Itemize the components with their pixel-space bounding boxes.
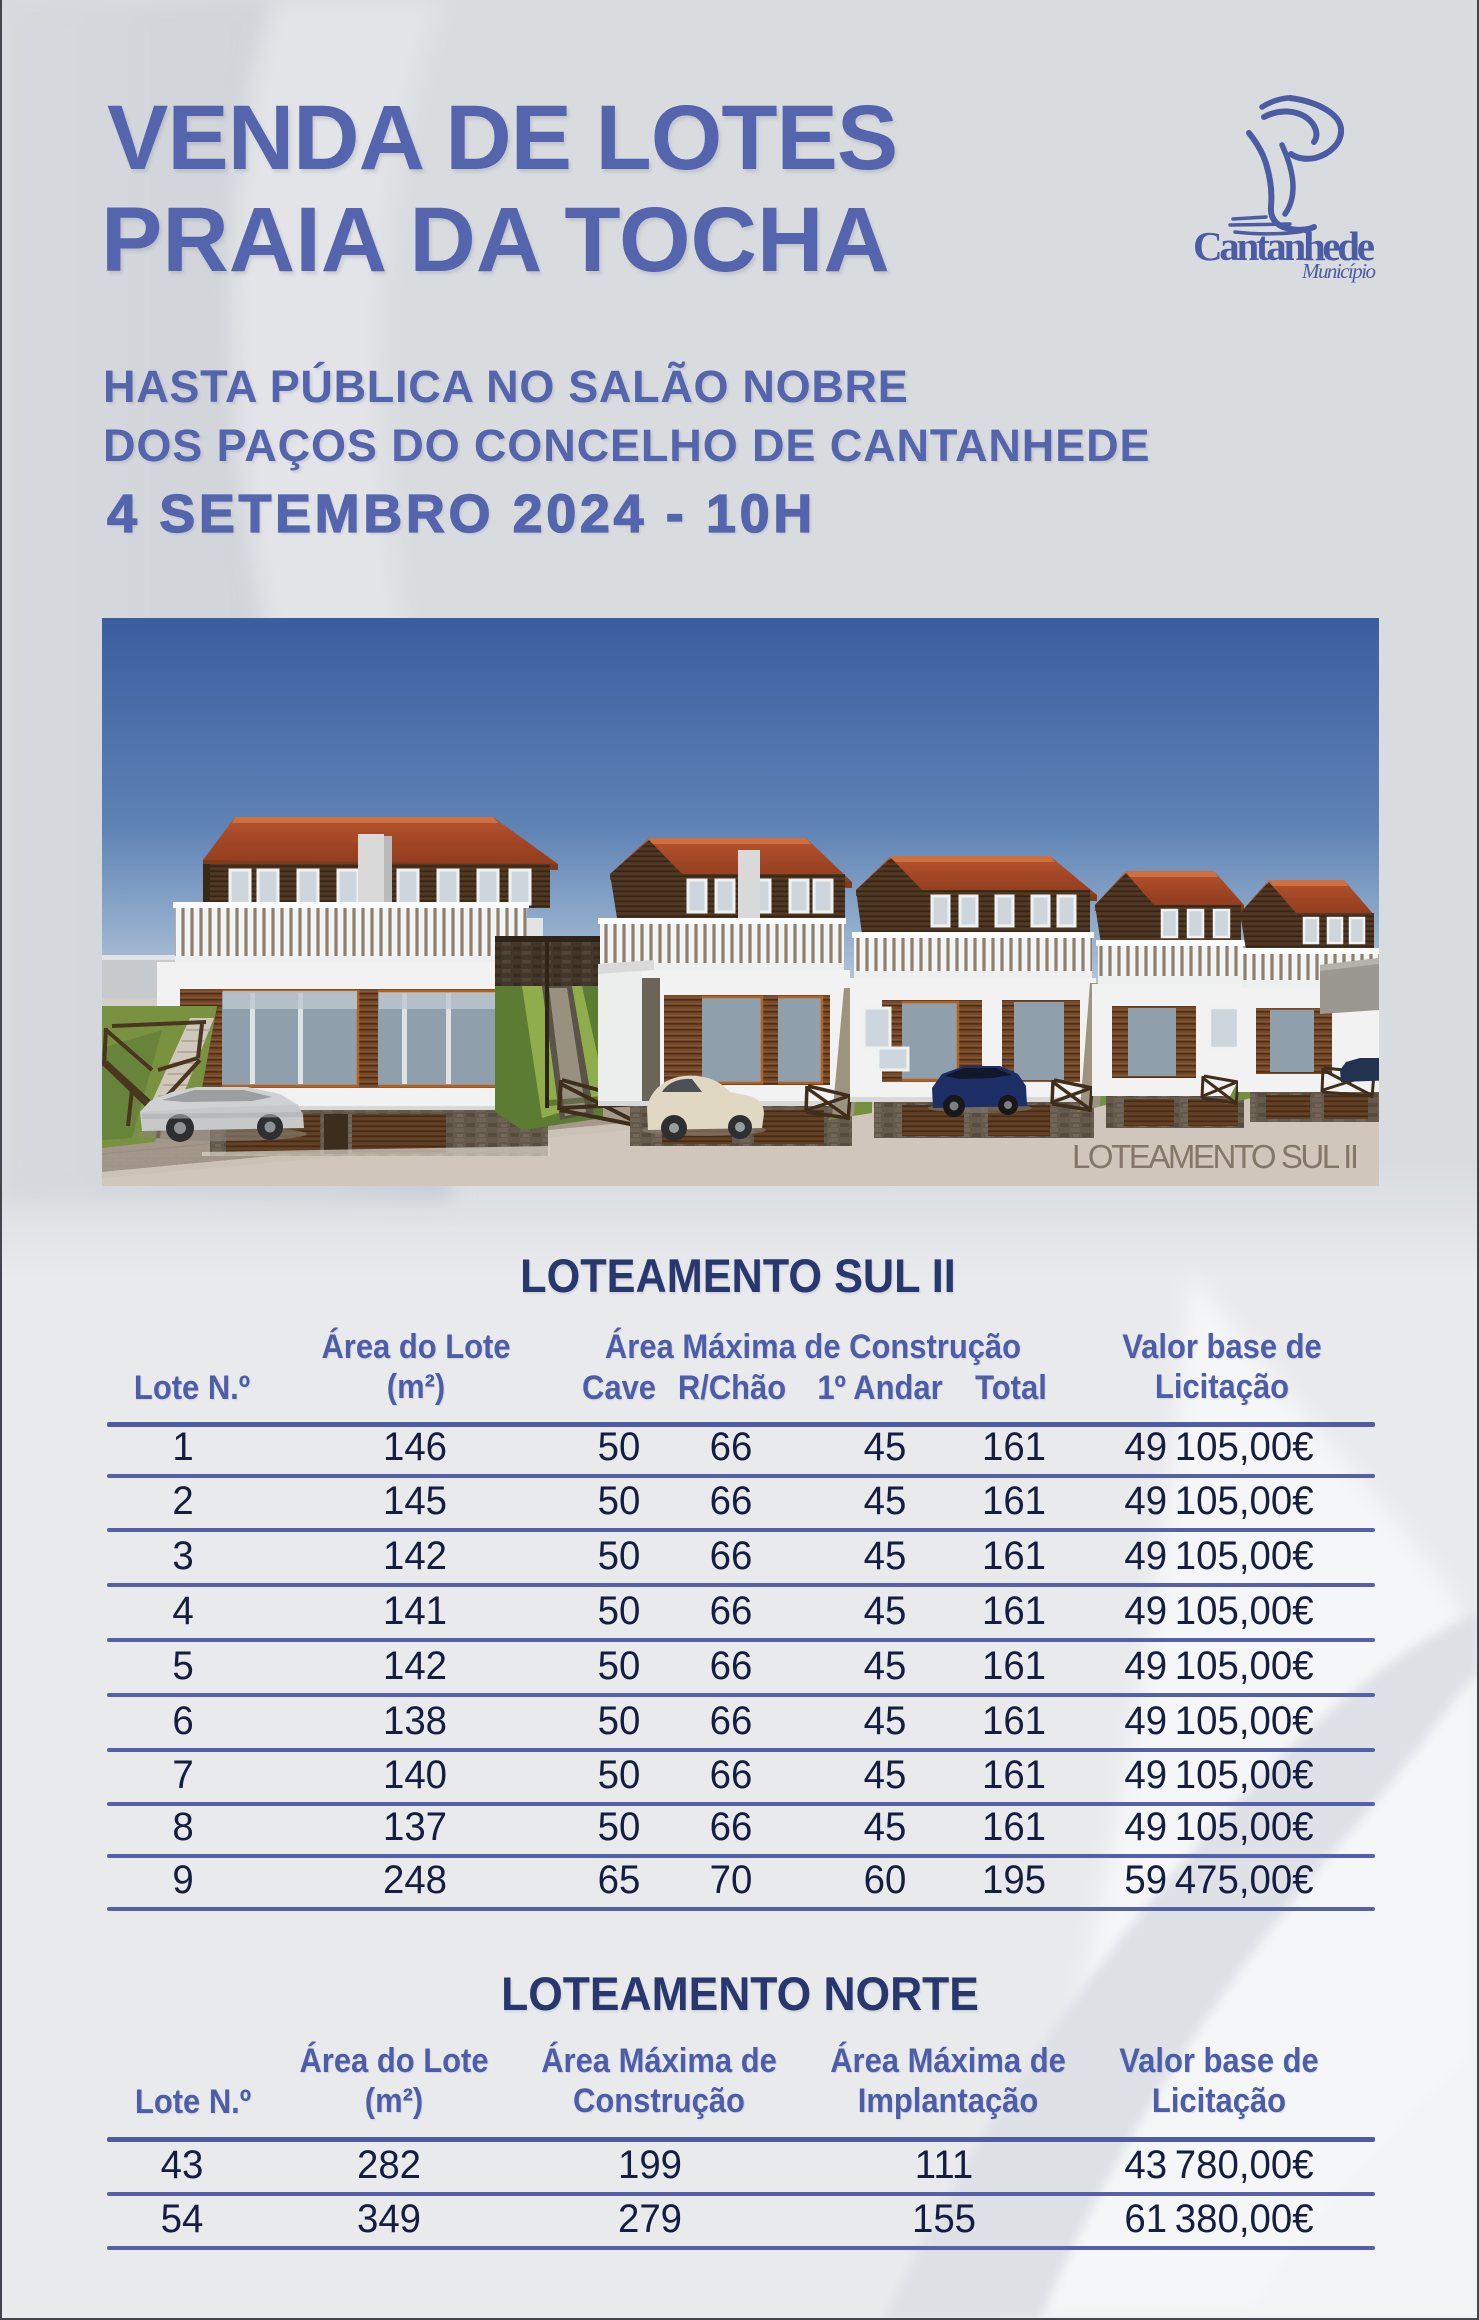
svg-text:Município: Município [1301,259,1376,283]
svg-text:LOTEAMENTO SUL II: LOTEAMENTO SUL II [1072,1138,1360,1175]
